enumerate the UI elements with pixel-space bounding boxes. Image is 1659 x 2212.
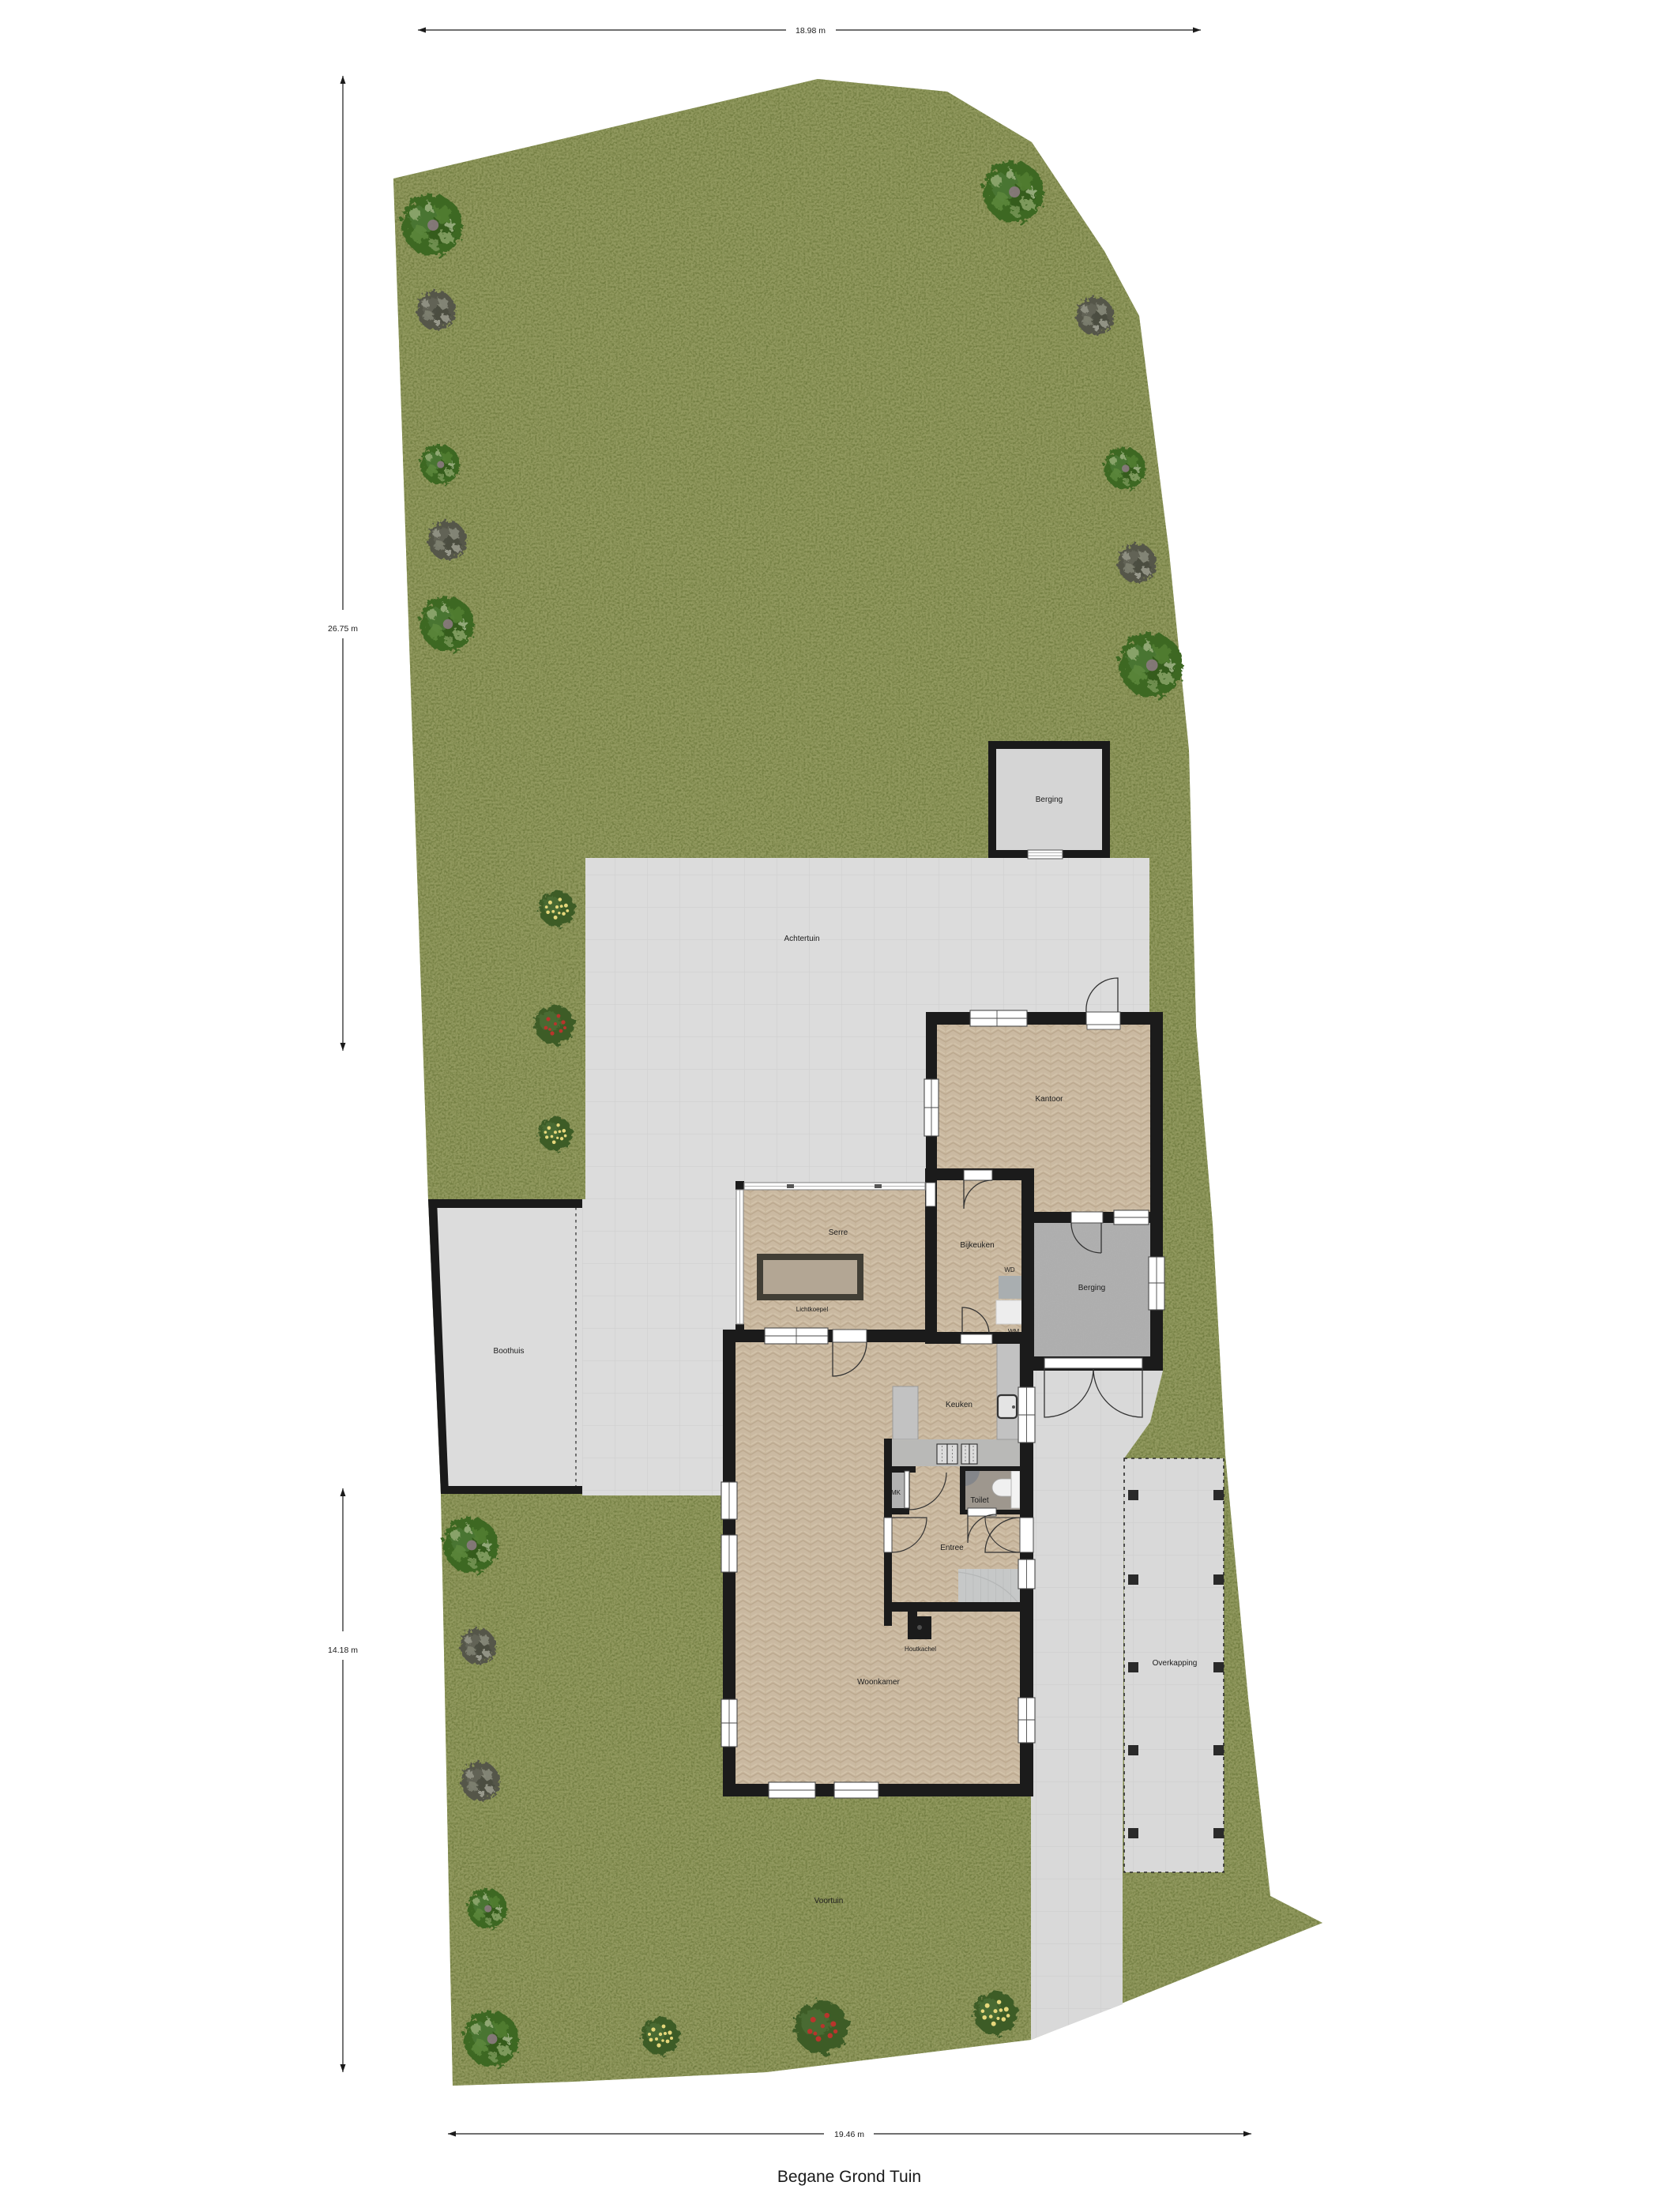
svg-text:Bijkeuken: Bijkeuken [960, 1241, 994, 1250]
svg-text:WM: WM [1008, 1328, 1020, 1335]
svg-text:MK: MK [891, 1489, 901, 1496]
svg-text:Berging: Berging [1036, 796, 1063, 804]
svg-text:Lichtkoepel: Lichtkoepel [796, 1306, 829, 1313]
svg-text:Woonkamer: Woonkamer [857, 1678, 900, 1687]
svg-text:Overkapping: Overkapping [1153, 1659, 1198, 1668]
svg-text:Toilet: Toilet [970, 1496, 989, 1505]
svg-text:Houtkachel: Houtkachel [905, 1646, 936, 1653]
svg-text:Serre: Serre [829, 1228, 848, 1237]
svg-text:Achtertuin: Achtertuin [784, 935, 819, 943]
svg-text:Boothuis: Boothuis [494, 1347, 525, 1356]
svg-text:18.98 m: 18.98 m [796, 26, 826, 36]
svg-text:26.75 m: 26.75 m [328, 624, 358, 634]
svg-text:Voortuin: Voortuin [814, 1897, 844, 1905]
svg-text:Kantoor: Kantoor [1035, 1095, 1063, 1104]
svg-text:Keuken: Keuken [946, 1401, 972, 1409]
svg-text:Entree: Entree [940, 1544, 964, 1552]
svg-text:WD: WD [1004, 1266, 1015, 1273]
svg-text:Begane Grond Tuin: Begane Grond Tuin [777, 2168, 921, 2186]
svg-text:Berging: Berging [1078, 1284, 1105, 1292]
svg-text:19.46 m: 19.46 m [834, 2130, 864, 2139]
svg-text:14.18 m: 14.18 m [328, 1646, 358, 1655]
